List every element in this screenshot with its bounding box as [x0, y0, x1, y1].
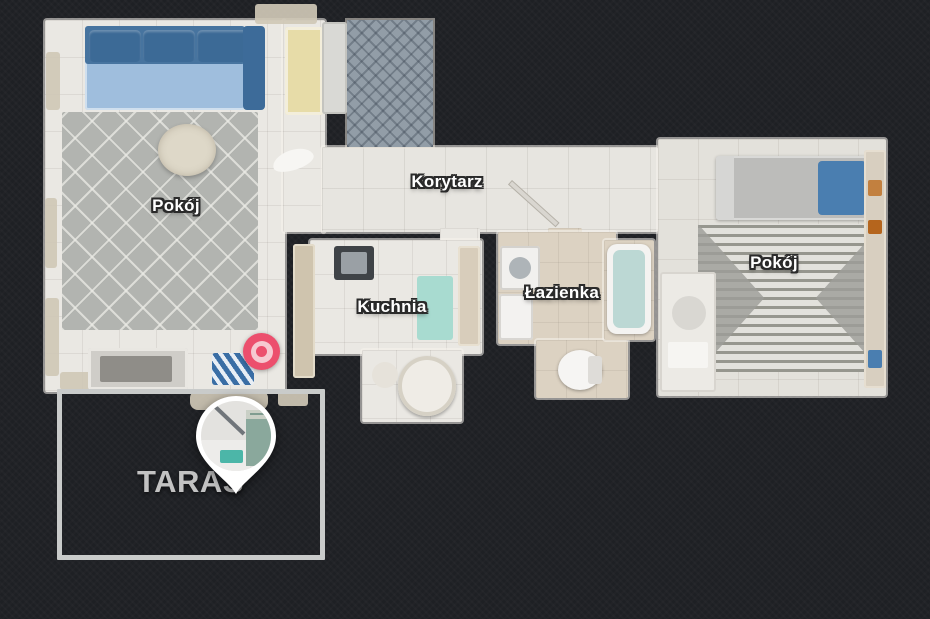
terrace-pin-icon[interactable]: [190, 394, 282, 496]
room-corridor-floor[interactable]: [322, 147, 658, 232]
room-label-living: Pokój: [152, 196, 200, 216]
room-label-bedroom: Pokój: [750, 253, 798, 273]
kitchen-cabinets-left: [293, 244, 315, 378]
entry-hall-tiles[interactable]: [347, 20, 433, 147]
sofa: [85, 26, 245, 110]
dining-chair: [372, 362, 398, 388]
wardrobe: [322, 22, 347, 114]
bedroom-shelf-right: [864, 150, 886, 388]
desk: [88, 348, 188, 390]
room-label-corridor: Korytarz: [411, 172, 482, 192]
position-marker-icon[interactable]: [243, 333, 280, 370]
dining-table: [398, 356, 456, 416]
scan-artifact: [45, 198, 57, 268]
bathtub: [607, 244, 651, 334]
room-label-kitchen: Kuchnia: [357, 297, 426, 317]
bedroom-rug: [698, 224, 882, 372]
kitchen-counter-right: [458, 246, 480, 346]
floorplan-viewport: Pokój Korytarz Kuchnia Łazienka Pokój TA…: [0, 0, 930, 619]
scan-artifact: [45, 298, 59, 376]
shelf-cabinet: [285, 27, 323, 115]
toilet: [558, 350, 602, 390]
room-label-bathroom: Łazienka: [525, 283, 599, 303]
scan-artifact: [255, 4, 317, 24]
kitchen-sink-counter: [334, 246, 374, 280]
ottoman: [158, 124, 216, 176]
scan-artifact: [46, 52, 60, 110]
bedroom-desk: [660, 272, 716, 392]
bed: [716, 156, 874, 220]
